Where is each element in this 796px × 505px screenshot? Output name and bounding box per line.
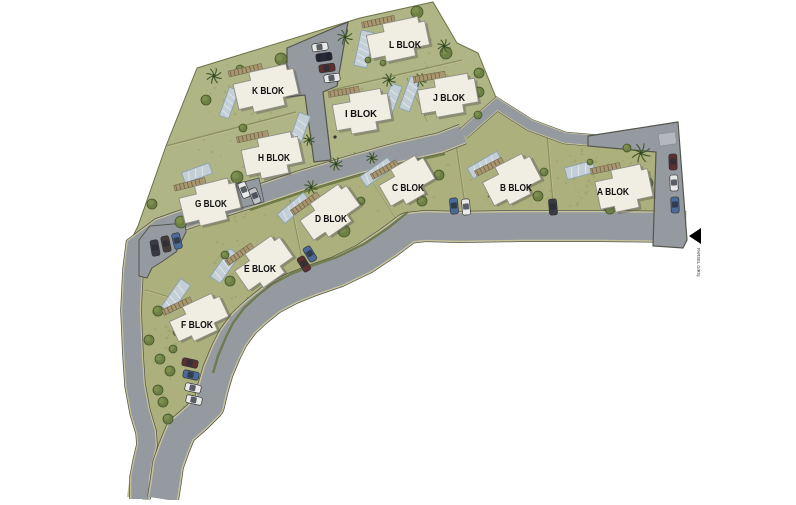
svg-text:C BLOK: C BLOK bbox=[392, 182, 424, 194]
svg-text:H BLOK: H BLOK bbox=[258, 152, 290, 164]
svg-text:I BLOK: I BLOK bbox=[345, 108, 377, 120]
svg-text:K BLOK: K BLOK bbox=[252, 85, 284, 97]
svg-text:D BLOK: D BLOK bbox=[315, 213, 347, 225]
svg-text:A BLOK: A BLOK bbox=[597, 186, 629, 198]
svg-text:J BLOK: J BLOK bbox=[433, 92, 465, 104]
svg-text:PARSEL GİRİŞ: PARSEL GİRİŞ bbox=[696, 248, 701, 277]
svg-text:E BLOK: E BLOK bbox=[244, 263, 276, 275]
svg-text:B BLOK: B BLOK bbox=[500, 182, 532, 194]
svg-text:F BLOK: F BLOK bbox=[181, 319, 213, 331]
svg-text:G BLOK: G BLOK bbox=[195, 198, 227, 210]
svg-text:L BLOK: L BLOK bbox=[389, 39, 421, 51]
